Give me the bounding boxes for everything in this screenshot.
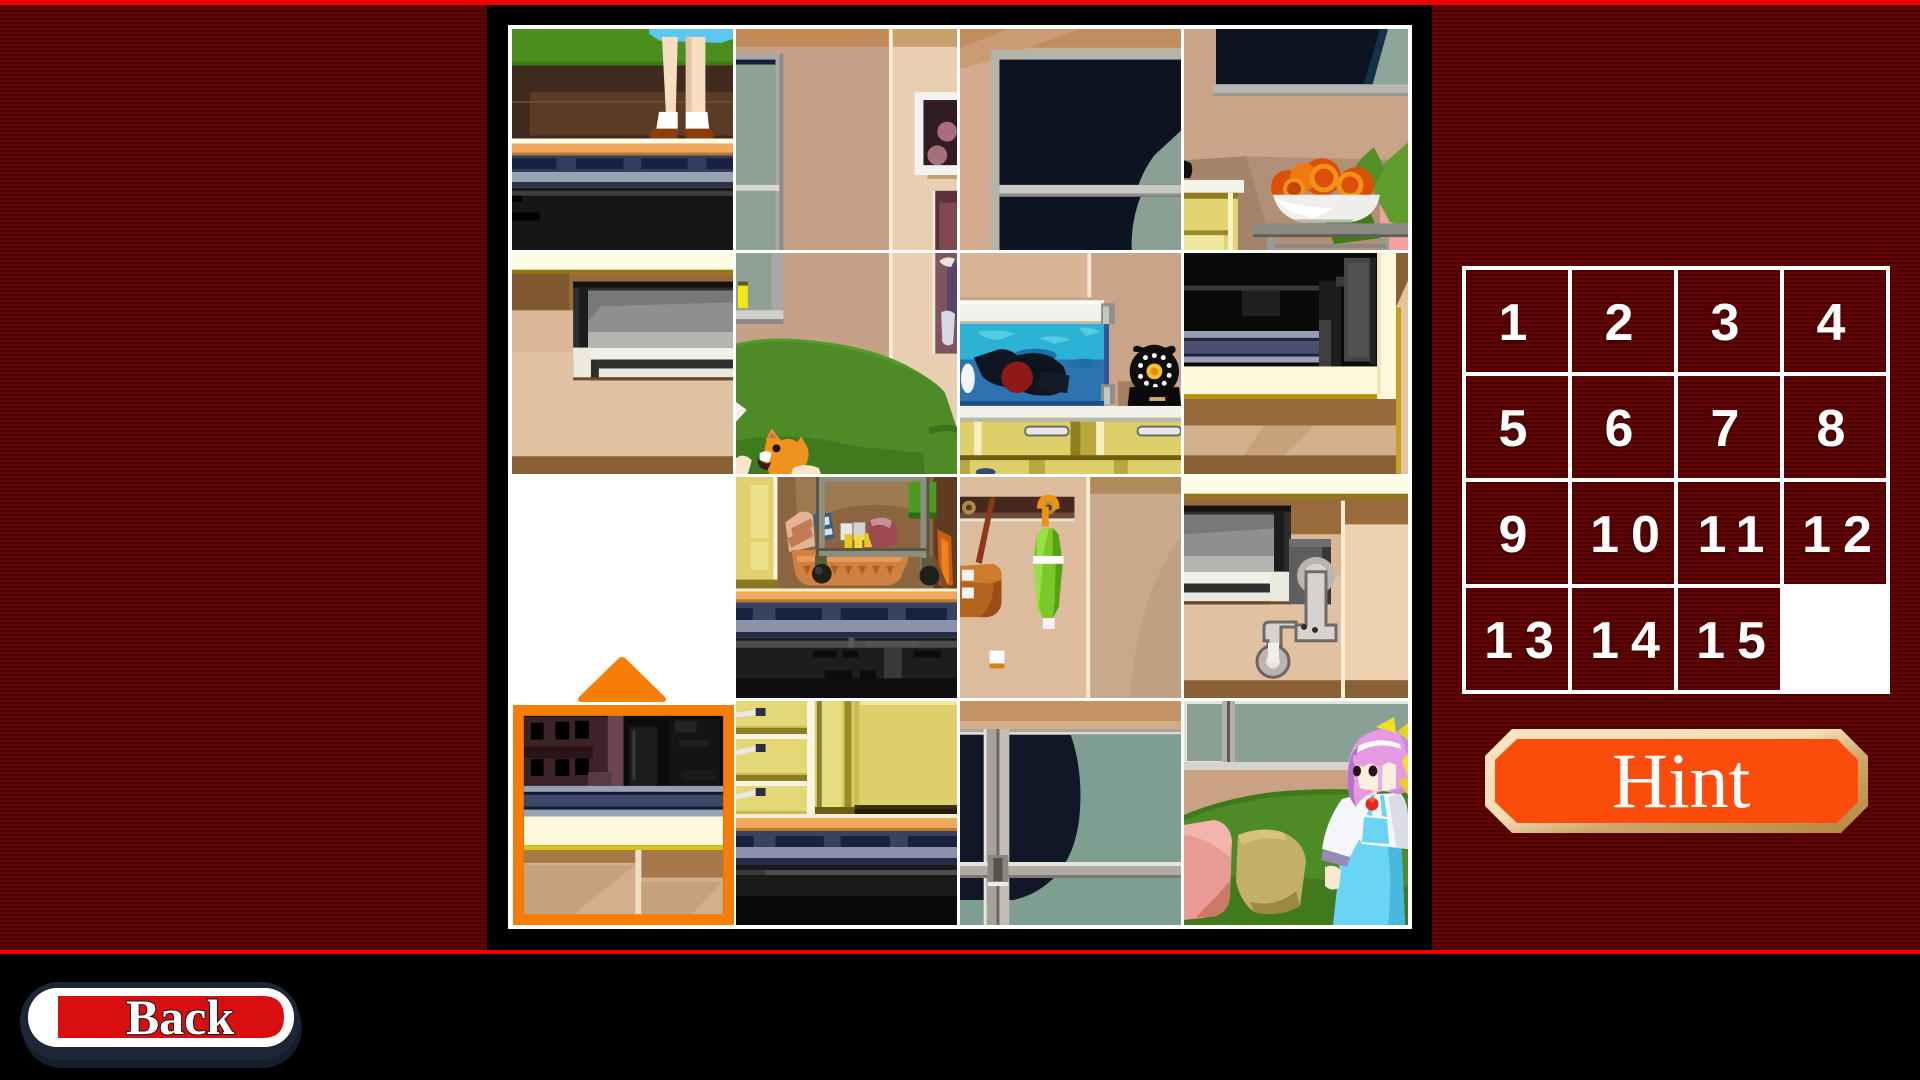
svg-text:13: 13: [1484, 612, 1566, 670]
svg-text:Hint: Hint: [1612, 737, 1751, 824]
svg-text:1: 1: [1499, 294, 1540, 352]
svg-text:Back: Back: [126, 989, 235, 1045]
svg-text:6: 6: [1605, 400, 1646, 458]
svg-text:7: 7: [1711, 400, 1752, 458]
svg-text:10: 10: [1590, 506, 1672, 564]
svg-text:3: 3: [1711, 294, 1752, 352]
svg-text:15: 15: [1696, 612, 1778, 670]
svg-text:11: 11: [1698, 506, 1777, 564]
svg-text:4: 4: [1817, 294, 1858, 352]
svg-text:2: 2: [1605, 294, 1646, 352]
svg-text:9: 9: [1499, 506, 1540, 564]
svg-text:14: 14: [1590, 612, 1672, 670]
svg-text:5: 5: [1499, 400, 1540, 458]
svg-text:12: 12: [1802, 506, 1884, 564]
svg-text:8: 8: [1817, 400, 1858, 458]
